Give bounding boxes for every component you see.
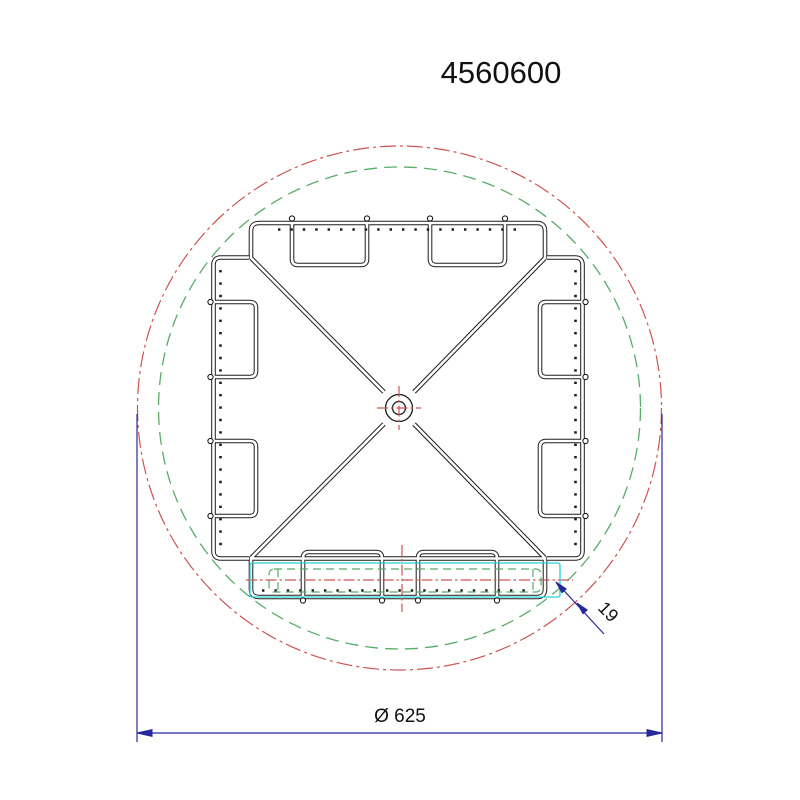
dimension-arrow-right [647, 730, 662, 737]
bottom-section-axes [246, 545, 573, 612]
diameter-dimension-label: Ø 625 [374, 706, 426, 727]
pallet-structure [208, 216, 588, 603]
leader-arrow-inner [577, 603, 587, 614]
cad-canvas: Ø 625 19 4560600 [0, 0, 800, 800]
drawing-title: 4560600 [441, 55, 562, 90]
cad-sheet: Ø 625 19 4560600 [0, 0, 800, 800]
dimension-arrow-left [137, 730, 152, 737]
red-centerlines [246, 386, 573, 612]
center-crosshair [377, 386, 421, 430]
thickness-dimension-label: 19 [594, 598, 622, 626]
